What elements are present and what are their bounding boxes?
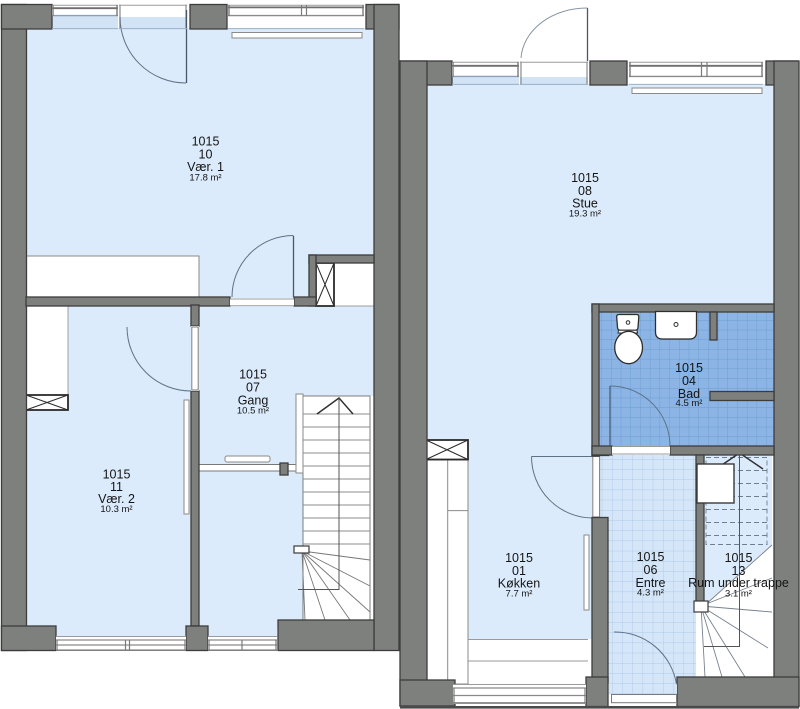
svg-text:4.5 m²: 4.5 m² (676, 398, 703, 409)
svg-text:3.1 m²: 3.1 m² (725, 589, 752, 600)
svg-text:1015: 1015 (505, 551, 533, 565)
svg-text:1015: 1015 (637, 550, 665, 564)
svg-text:19.3 m²: 19.3 m² (569, 209, 601, 220)
svg-text:17.8 m²: 17.8 m² (189, 173, 221, 184)
svg-text:1015: 1015 (239, 368, 267, 382)
svg-text:1015: 1015 (192, 135, 220, 149)
svg-text:7.7 m²: 7.7 m² (506, 589, 533, 600)
svg-text:1015: 1015 (571, 171, 599, 185)
svg-text:07: 07 (246, 381, 260, 395)
svg-text:1015: 1015 (675, 361, 703, 375)
svg-text:06: 06 (644, 563, 658, 577)
svg-text:10.5 m²: 10.5 m² (237, 406, 269, 417)
svg-text:04: 04 (682, 374, 696, 388)
svg-text:4.3 m²: 4.3 m² (637, 588, 664, 599)
svg-text:1015: 1015 (725, 551, 753, 565)
svg-text:10.3 m²: 10.3 m² (100, 504, 132, 515)
